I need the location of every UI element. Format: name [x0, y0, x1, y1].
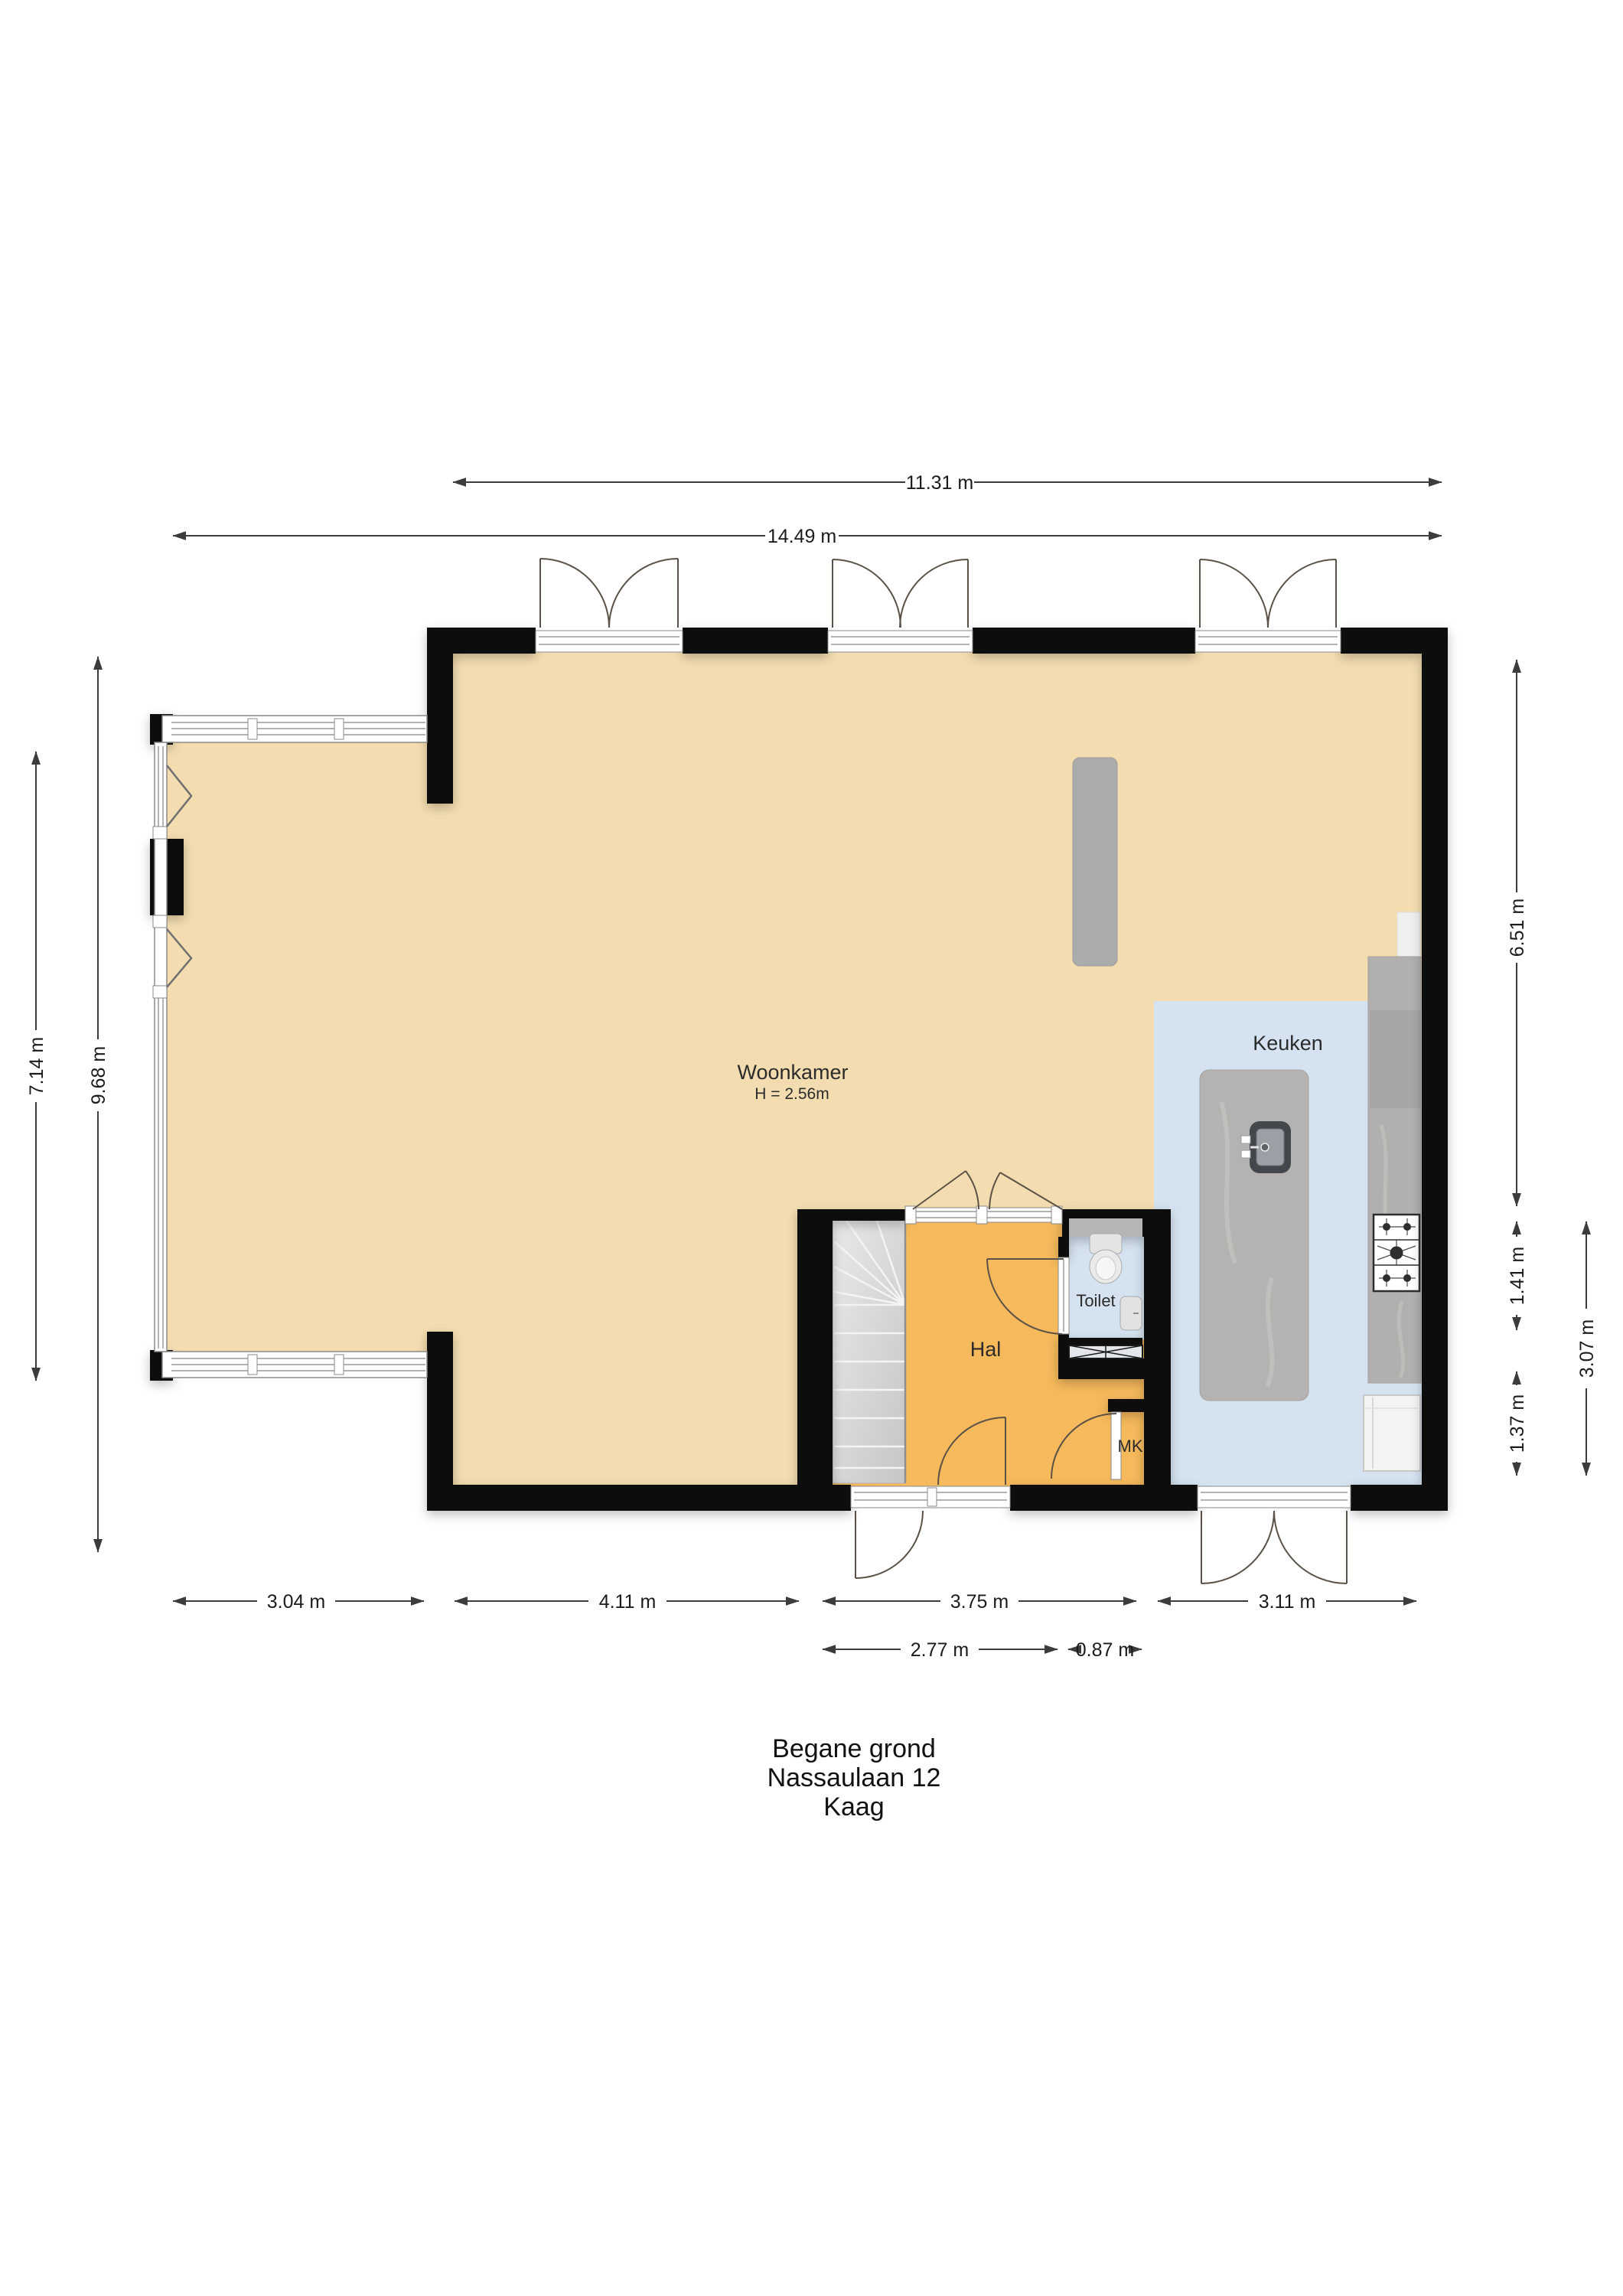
dim-right-meter-label: 1.37 m [1507, 1394, 1528, 1453]
kitchen-french-door [1198, 1486, 1351, 1583]
title-line-city: Kaag [823, 1792, 884, 1821]
dishwasher [1364, 1395, 1420, 1471]
door-swing-icon [833, 559, 968, 628]
title-line-floor: Begane grond [772, 1734, 936, 1763]
faucet-handle-icon [1241, 1136, 1250, 1143]
floorplan-page: 11.31 m 14.49 m 7.14 m 9.68 m 6.51 m 1.4… [0, 0, 1623, 2296]
bay-window-floor [164, 739, 453, 1356]
french-door-north-2 [828, 559, 973, 652]
dim-top-outer-label: 14.49 m [768, 526, 836, 547]
room-label-kitchen: Keuken [1253, 1032, 1323, 1055]
stairs-base [833, 1219, 905, 1483]
dim-bottom-living-label: 4.11 m [599, 1591, 657, 1613]
room-label-toilet: Toilet [1076, 1291, 1115, 1310]
floorplan-drawing: 11.31 m 14.49 m 7.14 m 9.68 m 6.51 m 1.4… [0, 0, 1623, 2296]
ventilation-shaft-icon [1069, 1345, 1142, 1358]
hand-basin-icon [1120, 1296, 1142, 1330]
bay-window-top [162, 716, 427, 742]
toilet-icon [1090, 1234, 1122, 1283]
dim-bottom-kitchen-label: 3.11 m [1259, 1591, 1316, 1613]
kitchen-island [1200, 1070, 1309, 1401]
room-label-hall: Hal [970, 1338, 1002, 1361]
dim-right-total-label: 3.07 m [1576, 1319, 1598, 1378]
dim-bottom-hall-label: 3.75 m [950, 1591, 1009, 1613]
room-label-living-height: H = 2.56m [754, 1085, 829, 1103]
room-label-living: Woonkamer [737, 1061, 848, 1084]
kitchen-counter-top-section [1370, 1010, 1421, 1108]
dim-right-toilet-label: 1.41 m [1507, 1247, 1528, 1305]
dim-top-inner-label: 11.31 m [906, 472, 973, 494]
staircase [833, 1219, 905, 1483]
gas-hob [1374, 1215, 1419, 1291]
faucet-handle-icon [1241, 1150, 1250, 1158]
room-label-meter-cupboard: MK [1118, 1437, 1143, 1456]
dim-bottom-toilet-label: 0.87 m [1076, 1639, 1134, 1661]
door-swing-icon [540, 559, 678, 628]
title-line-street: Nassaulaan 12 [768, 1763, 941, 1792]
door-swing-icon [1200, 559, 1336, 628]
dim-left-outer-label: 9.68 m [88, 1046, 109, 1104]
dim-bottom-hall-inner-label: 2.77 m [911, 1639, 969, 1661]
dim-bottom-bay-label: 3.04 m [267, 1591, 325, 1613]
french-door-north-3 [1195, 559, 1341, 652]
french-door-north-1 [536, 559, 683, 652]
door-swing-icon [1201, 1511, 1347, 1583]
door-swing-icon [855, 1511, 923, 1578]
sink-drain [1261, 1143, 1269, 1151]
dim-left-inner-label: 7.14 m [26, 1037, 47, 1095]
dim-right-living-label: 6.51 m [1507, 899, 1528, 957]
wall-cabinet [1073, 758, 1117, 966]
niche-appliance [1397, 912, 1420, 957]
title-block: Begane grond Nassaulaan 12 Kaag [768, 1734, 941, 1821]
bay-window-bottom [162, 1352, 427, 1378]
